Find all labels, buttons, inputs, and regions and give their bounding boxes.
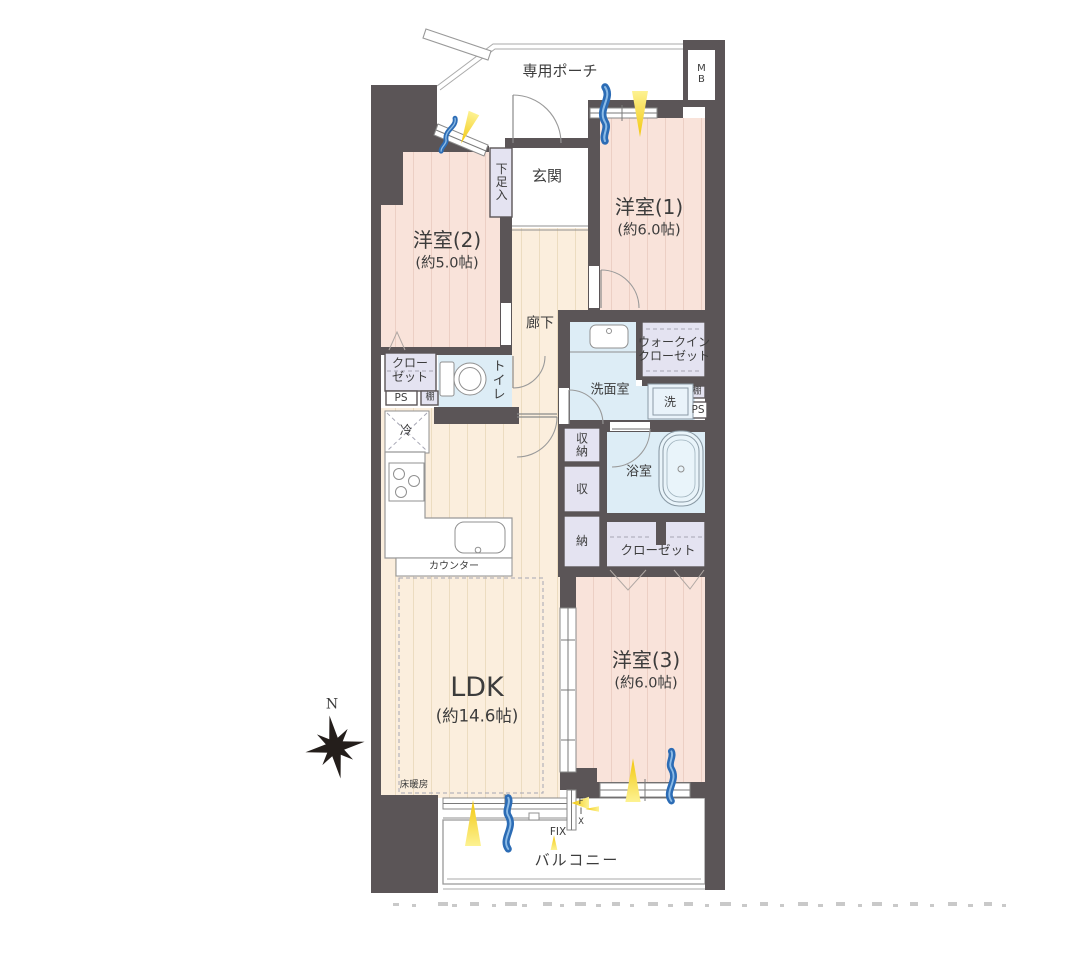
storage-combined-box: [564, 428, 600, 462]
counter-bar: [396, 558, 512, 576]
floor-areas: [381, 43, 705, 889]
room-western3-floor: [576, 577, 705, 790]
clipped-caption-text: [393, 902, 1006, 907]
stove: [389, 463, 424, 501]
sash-handle: [529, 813, 539, 820]
refrigerator-space: [385, 411, 429, 453]
closet-west3-area: [605, 518, 705, 567]
ps-left-box: [386, 391, 417, 405]
shelf-left-box: [421, 391, 438, 405]
meter-box: [688, 50, 715, 100]
storage-lower-box: [564, 516, 600, 567]
washer-pan: [648, 384, 693, 419]
toilet-tank: [440, 362, 454, 396]
porch-gate-leaf: [423, 29, 491, 60]
floor-plan-drawing: [0, 0, 1080, 960]
room-western1-floor: [600, 118, 705, 310]
storage-upper-box: [564, 466, 600, 512]
entrance-floor: [512, 148, 588, 228]
shoe-cabinet-box: [490, 148, 512, 217]
floor-plan: 専用ポーチ MB 玄関 下足入 洋室(1) (約6.0帖) 洋室(2) (約5.…: [0, 0, 1080, 960]
closet-west2-box: [385, 353, 436, 391]
walkin-closet-area: [642, 322, 705, 377]
compass-rose: [300, 710, 370, 783]
